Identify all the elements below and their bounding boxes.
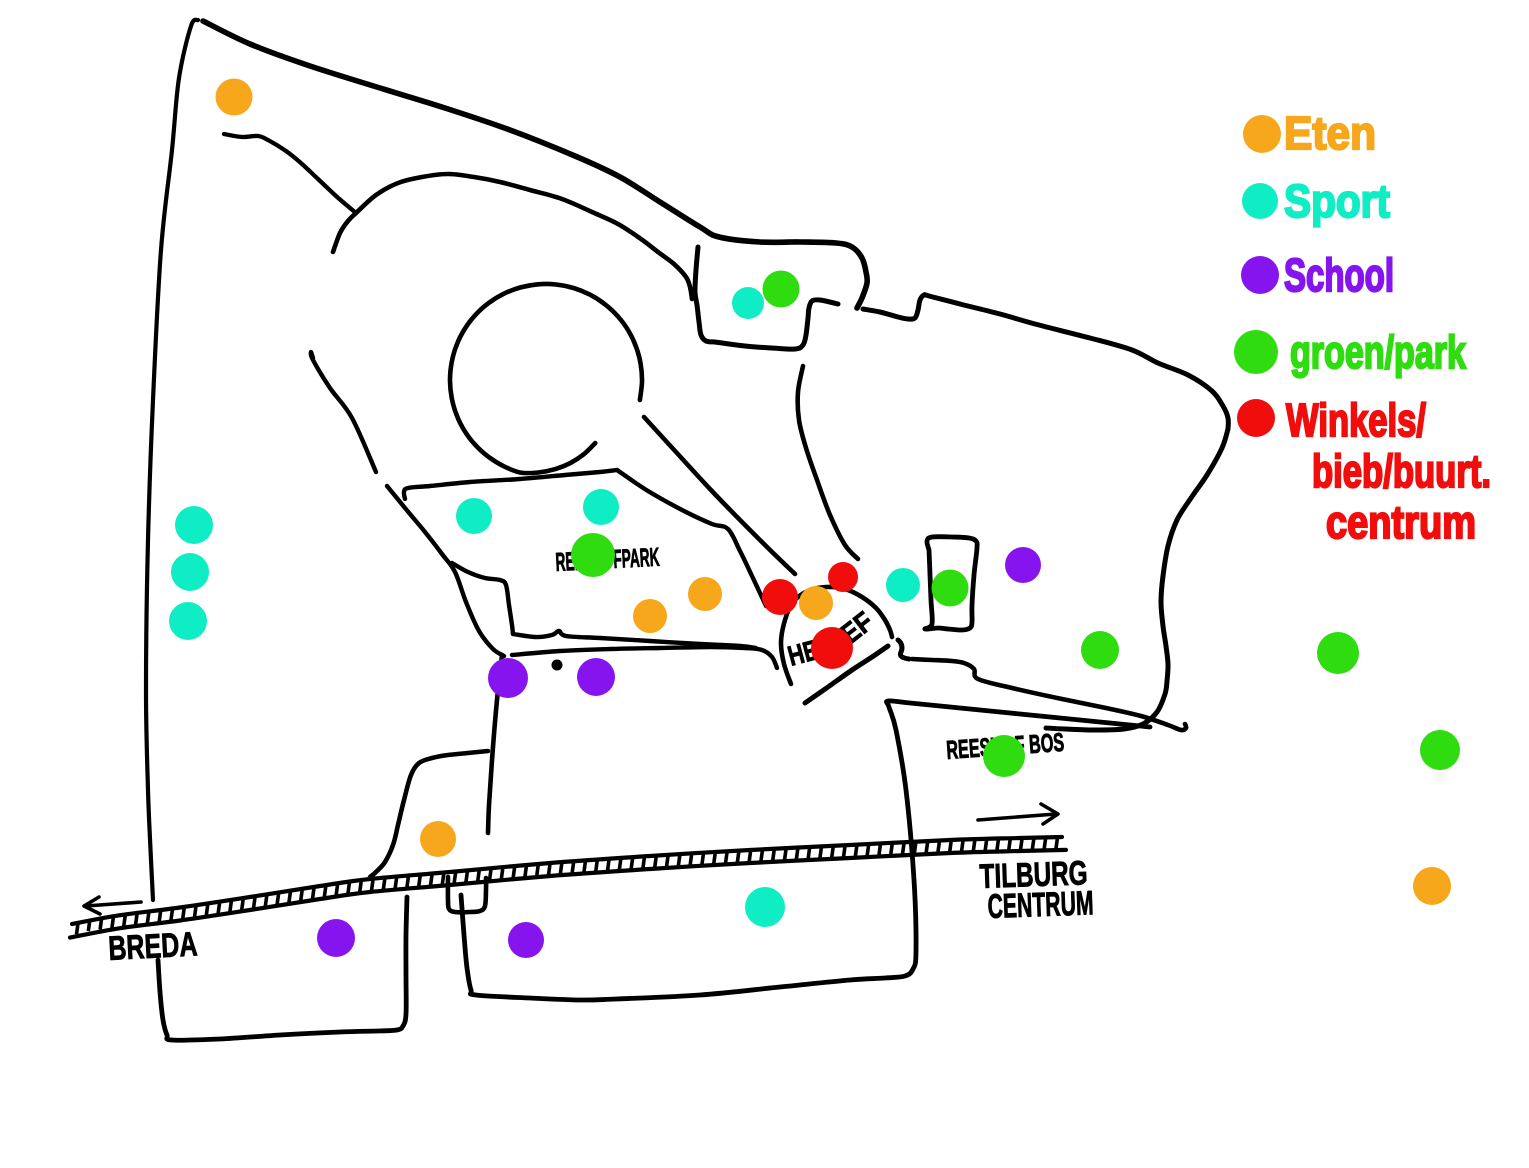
svg-text:centrum: centrum bbox=[1326, 496, 1476, 548]
svg-text:bieb/buurt.: bieb/buurt. bbox=[1312, 445, 1491, 497]
svg-text:groen/park: groen/park bbox=[1290, 326, 1466, 378]
svg-text:Eten: Eten bbox=[1284, 107, 1376, 159]
svg-text:Sport: Sport bbox=[1284, 175, 1390, 227]
svg-text:School: School bbox=[1284, 249, 1394, 301]
svg-text:CENTRUM: CENTRUM bbox=[987, 884, 1094, 926]
svg-text:Winkels/: Winkels/ bbox=[1286, 394, 1426, 446]
svg-text:BREDA: BREDA bbox=[107, 925, 198, 968]
